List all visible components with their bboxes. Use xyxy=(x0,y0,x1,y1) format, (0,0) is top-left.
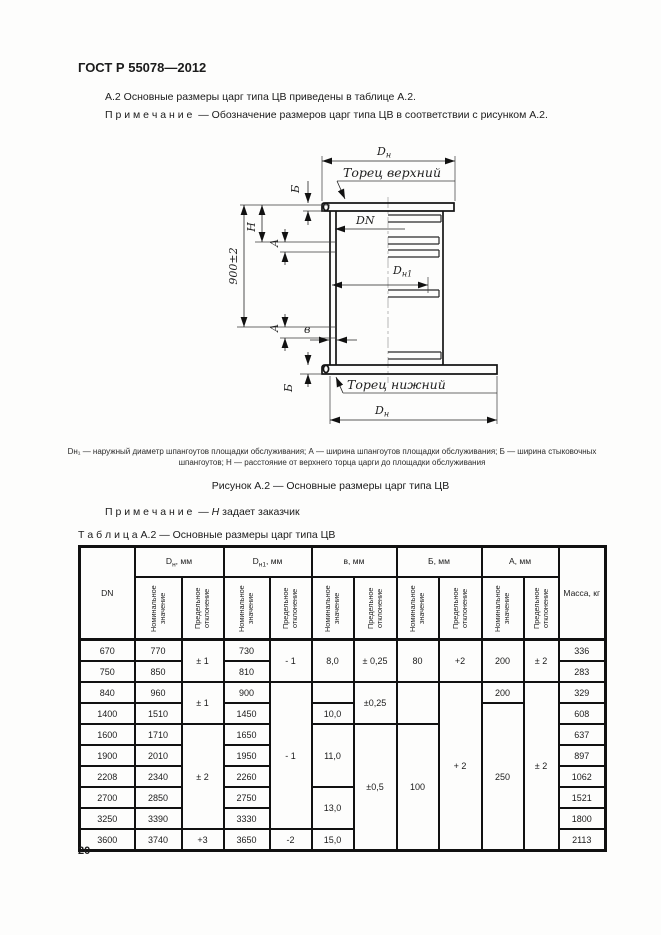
cell: 2010 xyxy=(135,745,182,766)
bottom-flange-lip xyxy=(323,365,328,372)
cell: -2 xyxy=(270,829,312,851)
stiffener-bands xyxy=(388,215,441,359)
document-page: ГОСТ Р 55078—2012 А.2 Основные размеры ц… xyxy=(0,0,661,935)
cell: ±0,25 xyxy=(354,682,397,724)
subcol-nominal: Номинальное значение xyxy=(397,577,439,640)
cell-mass: 283 xyxy=(559,661,606,682)
table-a2: DN Dн, мм Dн1, мм в, мм Б, мм А, мм Масс… xyxy=(78,545,607,852)
figure-definitions: Dн₁ — наружный диаметр шпангоутов площад… xyxy=(58,446,606,468)
cell-dn: 1600 xyxy=(80,724,135,745)
cell: 730 xyxy=(224,640,270,662)
cell: +3 xyxy=(182,829,224,851)
platform-frame-ticks xyxy=(330,242,336,338)
table-row: 840 960 ± 1 900 - 1 ±0,25 + 2 200 ± 2 32… xyxy=(80,682,606,703)
document-header: ГОСТ Р 55078—2012 xyxy=(78,60,206,75)
cell: 3740 xyxy=(135,829,182,851)
label-top-face: Торец верхний xyxy=(343,165,441,180)
cell: 15,0 xyxy=(312,829,354,851)
cell: 1650 xyxy=(224,724,270,745)
cell-dn: 3250 xyxy=(80,808,135,829)
cell: - 1 xyxy=(270,640,312,683)
cell: - 1 xyxy=(270,682,312,829)
cell: + 2 xyxy=(439,682,482,851)
cell: 770 xyxy=(135,640,182,662)
top-face-leader xyxy=(337,181,345,199)
subcol-nominal: Номинальное значение xyxy=(482,577,524,640)
cell: 2340 xyxy=(135,766,182,787)
label-h: H xyxy=(245,222,258,233)
cell-mass: 608 xyxy=(559,703,606,724)
cell: ± 2 xyxy=(524,682,559,851)
cell: 11,0 xyxy=(312,724,354,787)
col-group-dn: Dн, мм xyxy=(135,547,224,578)
cell: ± 2 xyxy=(524,640,559,683)
cell-dn: 1900 xyxy=(80,745,135,766)
table-row: 670 770 ± 1 730 - 1 8,0 ± 0,25 80 +2 200… xyxy=(80,640,606,662)
cell-mass: 336 xyxy=(559,640,606,662)
cell: 960 xyxy=(135,682,182,703)
col-mass: Масса, кг xyxy=(559,547,606,640)
cell: +2 xyxy=(439,640,482,683)
subcol-deviation: Предельное отклонение xyxy=(182,577,224,640)
cell xyxy=(312,682,354,703)
label-dn1: Dн1 xyxy=(392,264,412,279)
cell: 1710 xyxy=(135,724,182,745)
cell-mass: 329 xyxy=(559,682,606,703)
subcol-deviation: Предельное отклонение xyxy=(354,577,397,640)
cell: 2260 xyxy=(224,766,270,787)
label-a-top: А xyxy=(268,239,281,248)
cell-mass: 637 xyxy=(559,724,606,745)
cell: 8,0 xyxy=(312,640,354,683)
subcol-nominal: Номинальное значение xyxy=(312,577,354,640)
page-number: 20 xyxy=(78,845,90,857)
cell-dn: 2700 xyxy=(80,787,135,808)
cell: 13,0 xyxy=(312,787,354,829)
label-bottom-face: Торец нижний xyxy=(347,377,446,392)
col-group-b: Б, мм xyxy=(397,547,482,578)
table-title: Т а б л и ц а А.2 — Основные размеры цар… xyxy=(78,529,335,541)
subcol-deviation: Предельное отклонение xyxy=(439,577,482,640)
label-b-bottom: Б xyxy=(282,384,295,393)
figure-caption: Рисунок А.2 — Основные размеры царг типа… xyxy=(0,480,661,492)
cell: ± 1 xyxy=(182,682,224,724)
cell: 80 xyxy=(397,640,439,683)
cell: 1510 xyxy=(135,703,182,724)
cell: 3390 xyxy=(135,808,182,829)
subcol-nominal: Номинальное значение xyxy=(135,577,182,640)
label-v: в xyxy=(304,323,310,336)
cell xyxy=(397,682,439,724)
label-dn-bottom: Dн xyxy=(374,404,389,419)
col-group-a: А, мм xyxy=(482,547,559,578)
note-2: П р и м е ч а н и е — Н задает заказчик xyxy=(105,506,300,518)
top-flange-lip xyxy=(323,203,328,210)
subcol-deviation: Предельное отклонение xyxy=(524,577,559,640)
left-wall-section xyxy=(330,211,336,365)
cell: ± 0,25 xyxy=(354,640,397,683)
cell: 1950 xyxy=(224,745,270,766)
cell-dn: 2208 xyxy=(80,766,135,787)
cell-mass: 1062 xyxy=(559,766,606,787)
cell: 100 xyxy=(397,724,439,851)
cell: ±0,5 xyxy=(354,724,397,851)
cell-dn: 840 xyxy=(80,682,135,703)
col-group-dn1: Dн1, мм xyxy=(224,547,312,578)
cell-dn: 670 xyxy=(80,640,135,662)
cell-dn: 1400 xyxy=(80,703,135,724)
cell: 850 xyxy=(135,661,182,682)
col-group-v: в, мм xyxy=(312,547,397,578)
cell: 3330 xyxy=(224,808,270,829)
paragraph-a2: А.2 Основные размеры царг типа ЦВ привед… xyxy=(105,91,416,103)
cell: 2850 xyxy=(135,787,182,808)
label-b-top: Б xyxy=(289,185,302,194)
subcol-nominal: Номинальное значение xyxy=(224,577,270,640)
cell: 1450 xyxy=(224,703,270,724)
label-900: 900±2 xyxy=(227,247,240,284)
col-dn: DN xyxy=(80,547,135,640)
bottom-flange xyxy=(322,365,497,374)
cell: 200 xyxy=(482,682,524,703)
cell: 250 xyxy=(482,703,524,851)
cell: 200 xyxy=(482,640,524,683)
cell-mass: 1521 xyxy=(559,787,606,808)
cell: ± 2 xyxy=(182,724,224,829)
cell: 900 xyxy=(224,682,270,703)
cell-mass: 1800 xyxy=(559,808,606,829)
cell: 10,0 xyxy=(312,703,354,724)
cell: ± 1 xyxy=(182,640,224,683)
label-dn: DN xyxy=(355,214,375,227)
subcol-deviation: Предельное отклонение xyxy=(270,577,312,640)
cell: 810 xyxy=(224,661,270,682)
bottom-face-leader xyxy=(336,377,343,393)
figure-a2-drawing: Dн Торец верхний DN Dн1 Б H 900±2 А А в xyxy=(225,143,510,439)
label-dn-top: Dн xyxy=(376,145,391,160)
cell: 2750 xyxy=(224,787,270,808)
label-a-bottom: А xyxy=(268,324,281,333)
cell-mass: 897 xyxy=(559,745,606,766)
cell-dn: 750 xyxy=(80,661,135,682)
cell-mass: 2113 xyxy=(559,829,606,851)
note-1: П р и м е ч а н и е — Обозначение размер… xyxy=(105,109,548,121)
cell: 3650 xyxy=(224,829,270,851)
